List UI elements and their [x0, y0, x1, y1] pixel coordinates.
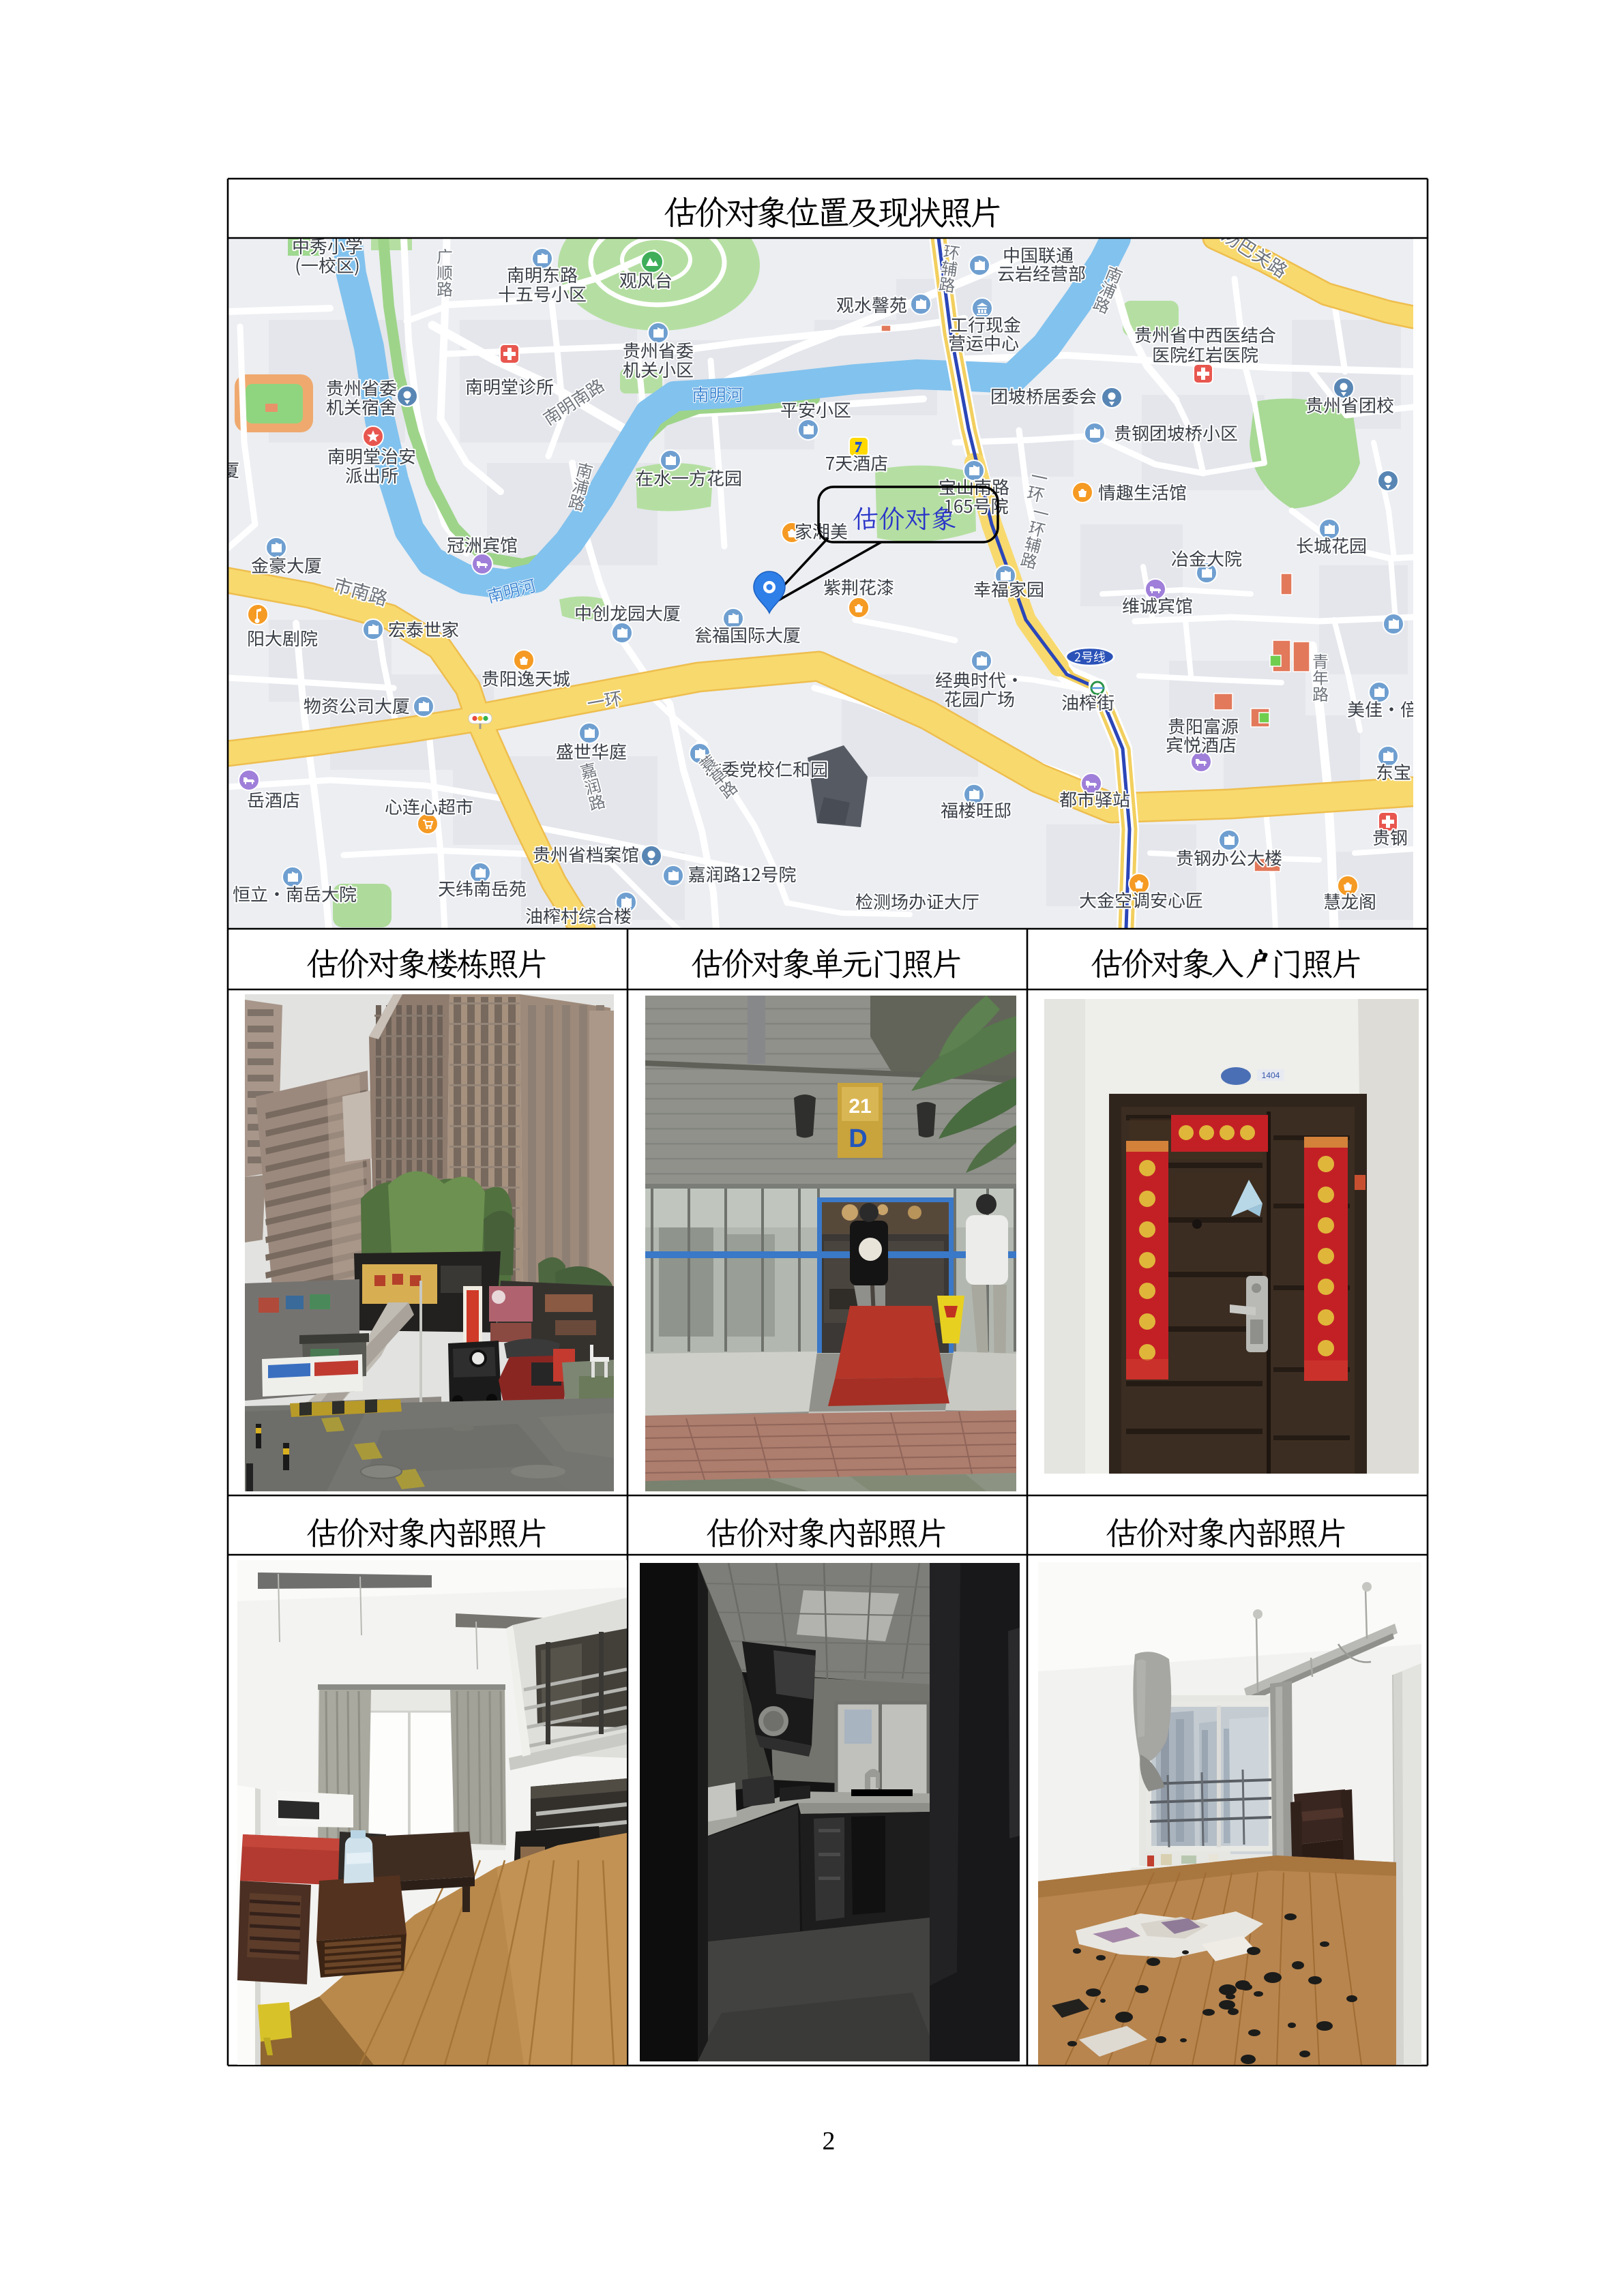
svg-text:21: 21: [848, 1095, 871, 1118]
svg-text:1404: 1404: [1262, 1071, 1280, 1080]
svg-text:D: D: [848, 1124, 867, 1153]
